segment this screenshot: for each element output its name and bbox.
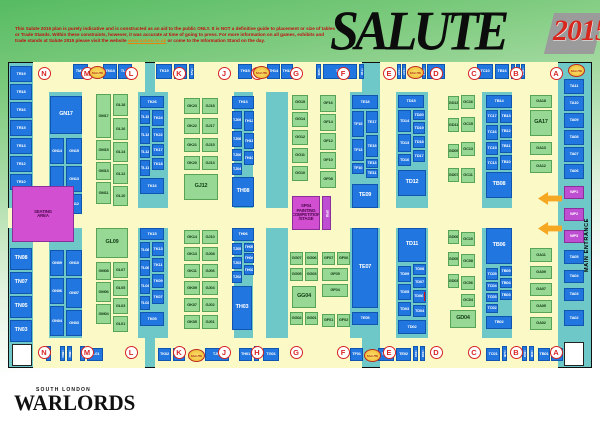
booth-th06: TH06: [232, 228, 254, 241]
booth-gj01: GJ01: [202, 315, 218, 329]
booth-th03: TH03: [232, 286, 252, 330]
column-marker-a-bottom: A: [550, 346, 563, 359]
booth-gj10: GJ10: [202, 230, 218, 244]
booth-te13: TE13: [366, 159, 378, 168]
booth-td07: TD07: [413, 277, 426, 288]
booth-ta05: TA05: [564, 250, 584, 264]
booth-tb06: TB06: [486, 228, 512, 264]
booth-gd07: GD07: [448, 168, 459, 182]
booth-ga09: GA09: [530, 266, 552, 279]
column-marker-g-bottom: G: [290, 346, 303, 359]
booth-gg15: GG15: [292, 95, 308, 110]
booth-gd09: GD09: [448, 144, 459, 158]
booth-gf10: GF10: [320, 152, 336, 169]
booth-gd04: GD04: [450, 310, 476, 328]
salute-badge-icon: SALUTE: [364, 349, 381, 362]
booth-td19: TD19: [413, 122, 425, 134]
booth-gm11: GM11: [96, 182, 111, 204]
booth-tb15: TB15: [522, 346, 527, 361]
booth-th01: TH01: [239, 348, 252, 361]
aisle: [8, 208, 558, 228]
booth-gm13: GM13: [96, 162, 111, 180]
booth-gg14: GG14: [292, 112, 308, 127]
main-entrance-label: MAIN ENTRANCE: [584, 176, 590, 272]
booth-gf06: GF06: [337, 252, 350, 265]
column-marker-a-top: A: [550, 67, 563, 80]
booth-gn06: GN06: [50, 278, 64, 304]
booth-wp3: WP3: [564, 230, 584, 243]
column-marker-c-top: C: [468, 67, 481, 80]
column-marker-h-bottom: H: [251, 346, 264, 359]
booth-gj13: GJ13: [202, 156, 218, 170]
salute-badge-icon: SALUTE: [407, 66, 424, 79]
booth-gf12: GF12: [320, 133, 336, 150]
booth-gj02: GJ02: [202, 298, 218, 312]
booth-tr18: TR18: [10, 84, 32, 100]
booth-tn08: TN08: [10, 248, 32, 270]
booth-gk20: GK20: [184, 156, 200, 170]
booth-ga13: GA13: [530, 142, 552, 155]
booth-gg12: GG12: [292, 130, 308, 145]
booth-tl02: TL02: [140, 296, 150, 310]
booth-ga11: GA11: [530, 248, 552, 262]
booth-gn03: GN03: [66, 310, 82, 336]
booth-tr12: TR12: [10, 156, 32, 172]
disclaimer-text: This Salute 2015 plan is purely indicati…: [15, 26, 335, 45]
salute-website-link: www.salute.co.uk: [128, 38, 166, 43]
booth-gl03: GL03: [113, 298, 128, 314]
booth-tj03: TJ03: [232, 257, 242, 269]
booth-gf08: GF08: [320, 171, 336, 188]
booth-tb03: TB03: [500, 290, 512, 300]
booth-gg01: GG01: [305, 312, 318, 325]
booth-te11: TE11: [366, 169, 378, 178]
booth-gd06: GD06: [448, 230, 459, 244]
column-marker-j-top: J: [218, 67, 231, 80]
booth-tb10: TB10: [500, 155, 512, 170]
booth-gc10: GC10: [461, 232, 475, 246]
column-marker-c-bottom: C: [468, 346, 481, 359]
booth-te04: TE04: [420, 346, 425, 361]
booth-tk22: TK22: [152, 128, 164, 142]
booth-td09: TD09: [398, 266, 411, 282]
booth-gk13: GK13: [184, 247, 200, 261]
booth-tl11: TL11: [140, 160, 150, 176]
booth-tj02: TJ02: [232, 271, 242, 283]
booth-ta04: TA04: [564, 270, 584, 283]
booth-td02: TD02: [398, 320, 426, 334]
booth-gk11: GK11: [184, 264, 200, 278]
booth-tk17: TK17: [152, 144, 164, 156]
booth-gj06: GJ06: [202, 264, 218, 278]
booth-gg03: GG03: [305, 268, 318, 281]
door: [564, 342, 584, 366]
booth-tb09: TB09: [529, 346, 534, 361]
booth-th15: TH15: [238, 64, 252, 79]
booth-tj08: TJ08: [232, 131, 242, 147]
column-marker-n-top: N: [38, 67, 51, 80]
booth-th11: TH11: [244, 133, 254, 149]
booth-gj04: GJ04: [202, 281, 218, 295]
booth-gm06: GM06: [96, 282, 111, 302]
booth-tr16: TR16: [10, 102, 32, 118]
booth-tc04: TC04: [486, 282, 498, 291]
booth-tb04: TB04: [500, 278, 512, 288]
booth-gf16: GF16: [320, 95, 336, 112]
booth-ta09: TA09: [564, 113, 584, 128]
booth-tn07: TN07: [10, 272, 32, 294]
booth-tl15: TL15: [140, 110, 150, 124]
booth-tc01: TC01: [486, 348, 500, 361]
booth-gg02: GG02: [290, 312, 303, 325]
booth-tc15: TC15: [486, 142, 498, 155]
booth-tm03: TM03: [60, 346, 65, 361]
column-marker-k-top: K: [173, 67, 186, 80]
booth-tl12: TL12: [140, 146, 150, 158]
booth-te18: TE18: [352, 95, 378, 109]
salute-year: 2015: [553, 14, 600, 48]
booth-gn15: GN15: [66, 138, 82, 164]
column-marker-e-top: E: [383, 67, 396, 80]
booth-gd05: GD05: [448, 252, 459, 266]
booth-tf18: TF18: [359, 64, 364, 79]
booth-gf14: GF14: [320, 114, 336, 131]
booth-ta06: TA06: [564, 164, 584, 179]
booth-seating: SEATING AREA: [12, 186, 74, 242]
booth-gc13: GC13: [461, 142, 475, 156]
booth-ta11: TA11: [564, 79, 584, 94]
column-marker-d-bottom: D: [430, 346, 443, 359]
booth-tk11: TK11: [152, 258, 164, 272]
booth-gf02: GF02: [337, 314, 350, 327]
booth-tk26: TK26: [140, 96, 164, 108]
booth-gk07: GK07: [184, 298, 200, 312]
booth-tb01: TB01: [538, 348, 550, 361]
booth-gg04: GG04: [292, 286, 316, 308]
salute-badge-icon: SALUTE: [568, 64, 585, 77]
booth-tc05: TC05: [486, 268, 498, 280]
booth-gc16: GC16: [461, 95, 475, 109]
booth-tk09: TK09: [152, 274, 164, 288]
booth-ga12: GA12: [530, 160, 552, 173]
booth-gl01: GL01: [113, 316, 128, 332]
booth-tb11: TB11: [500, 140, 512, 153]
booth-gg05: GG05: [290, 268, 303, 281]
booth-gk05: GK05: [184, 315, 200, 329]
booth-te19: TE19: [397, 64, 401, 79]
booth-td05: TD05: [398, 284, 411, 300]
salute-logo: SALUTE: [330, 0, 555, 64]
booth-tj09: TJ09: [232, 111, 242, 129]
booth-th02: TH02: [244, 265, 254, 275]
booth-th12: TH12: [244, 111, 254, 131]
booth-td03: TD03: [398, 302, 411, 316]
booth-ga02: GA02: [530, 317, 552, 330]
column-marker-f-top: F: [337, 67, 350, 80]
booth-tm02: TM02: [67, 346, 72, 361]
booth-tb16: TB16: [495, 64, 509, 79]
booth-th10: TH10: [244, 151, 254, 165]
booth-ta07: TA07: [564, 147, 584, 162]
booth-gc06: GC06: [461, 276, 475, 290]
booth-tk21: TK21: [189, 64, 194, 79]
booth-gf07: GF07: [322, 252, 335, 265]
booth-gm15: GM15: [96, 140, 111, 160]
first-aid-marker: [424, 292, 425, 301]
column-marker-f-bottom: F: [337, 346, 350, 359]
booth-gn07: GN07: [66, 278, 82, 308]
booth-gn04: GN04: [50, 306, 64, 336]
booth-gd13: GD13: [448, 96, 459, 110]
column-marker-e-bottom: E: [383, 346, 396, 359]
booth-td15: TD15: [398, 95, 424, 108]
booth-tc02: TC02: [486, 304, 498, 313]
salute-badge-icon: SALUTE: [89, 66, 106, 79]
booth-tc03: TC03: [486, 293, 498, 302]
salute-badge-icon: SALUTE: [188, 349, 205, 362]
booth-td08: TD08: [413, 264, 426, 275]
column-marker-b-bottom: B: [510, 346, 523, 359]
booth-gf05: GF05: [322, 268, 348, 281]
booth-gk23: GK23: [184, 98, 200, 114]
booth-gl09: GL09: [96, 228, 128, 258]
booth-gk22: GK22: [184, 118, 200, 134]
booth-tf10: TF10: [352, 163, 364, 174]
booth-tc17: TC17: [486, 110, 498, 123]
booth-gn10: GN10: [66, 250, 82, 276]
booth-gn17: GN17: [50, 96, 82, 134]
booth-gl16: GL16: [113, 118, 128, 140]
booth-gg06: GG06: [305, 252, 318, 265]
booth-te05: TE05: [352, 312, 378, 325]
booth-td17: TD17: [413, 150, 425, 162]
booth-gg11: GG11: [292, 148, 308, 163]
booth-gl07: GL07: [113, 262, 128, 278]
booth-gj18: GJ18: [202, 98, 218, 114]
booth-tk18: TK18: [152, 158, 164, 170]
booth-td04: TD04: [413, 305, 426, 317]
booth-gn14: GN14: [50, 138, 64, 164]
booth-ga18: GA18: [530, 95, 552, 108]
booth-tf01: TF01: [350, 348, 363, 361]
booth-gd11: GD11: [448, 118, 459, 132]
booth-tk16: TK16: [140, 178, 164, 194]
booth-td12: TD12: [398, 170, 426, 196]
booth-wp2: WP2: [564, 208, 584, 221]
booth-gl05: GL05: [113, 280, 128, 296]
booth-tc16: TC16: [486, 125, 498, 140]
booth-te02: TE02: [396, 348, 411, 361]
booth-gm08: GM08: [96, 262, 111, 280]
booth-gk14: GK14: [184, 230, 200, 244]
booth-ga17: GA17: [530, 110, 552, 136]
booth-tl04: TL04: [140, 278, 150, 294]
booth-th08: TH08: [232, 177, 254, 207]
booth-tr15: TR15: [10, 120, 32, 136]
booth-ga07: GA07: [530, 283, 552, 296]
booth-gj12: GJ12: [184, 174, 218, 200]
booth-ta10: TA10: [564, 96, 584, 111]
booth-tl08: TL08: [140, 242, 150, 258]
booth-gl10: GL10: [113, 186, 128, 206]
booth-gl18: GL18: [113, 94, 128, 116]
column-marker-k-bottom: K: [173, 346, 186, 359]
booth-gn09: GN09: [50, 250, 64, 276]
booth-td20: TD20: [413, 110, 425, 120]
column-marker-l-top: L: [125, 67, 138, 80]
booth-td11: TD11: [398, 228, 426, 262]
booth-gc11: GC11: [461, 168, 475, 183]
booth-tb12: TB12: [500, 125, 512, 138]
booth-gj17: GJ17: [202, 118, 218, 134]
booth-wp1: WP1: [564, 186, 584, 199]
booth-gk21: GK21: [184, 138, 200, 152]
booth-tk02: TK02: [158, 348, 171, 361]
booth-te15: TE15: [366, 135, 378, 157]
booth-ta02: TA02: [564, 310, 584, 326]
booth-gl12: GL12: [113, 164, 128, 184]
booth-ta08: TA08: [564, 130, 584, 145]
salute-badge-icon: SALUTE: [253, 66, 270, 79]
booth-ga05: GA05: [530, 300, 552, 313]
booth-tc13: TC13: [486, 157, 498, 170]
booth-td14: TD14: [398, 110, 411, 132]
booth-th13: TH13: [232, 96, 254, 109]
booth-gg10: GG10: [292, 166, 308, 181]
booth-gj08: GJ08: [202, 247, 218, 261]
booth-tb13: TB13: [500, 110, 512, 123]
booth-te20: TE20: [402, 64, 406, 79]
booth-tn03: TN03: [10, 320, 32, 342]
booth-gm04: GM04: [96, 304, 111, 324]
booth-tj06: TJ06: [232, 149, 242, 161]
booth-gd03: GD03: [448, 274, 459, 288]
booth-sp04: SP04 PAINTING COMPETITION /STAGE: [292, 196, 320, 230]
booth-tf13: TF13: [352, 139, 364, 161]
booth-gj15: GJ15: [202, 138, 218, 152]
booth-td16: TD16: [398, 154, 411, 166]
booth-td18: TD18: [413, 136, 425, 148]
booth-gg07: GG07: [290, 252, 303, 265]
column-marker-j-bottom: J: [218, 346, 231, 359]
booth-tj04: TJ04: [232, 163, 242, 175]
column-marker-d-top: D: [430, 67, 443, 80]
booth-td06: TD06: [413, 290, 426, 303]
booth-tk05: TK05: [140, 312, 164, 326]
booth-te09: TE09: [352, 184, 378, 208]
booth-gc04: GC04: [461, 294, 475, 307]
booth-te07: TE07: [352, 228, 378, 308]
booth-td13: TD13: [398, 134, 411, 152]
booth-tf15: TF15: [352, 111, 364, 137]
booth-th04: TH04: [244, 253, 254, 263]
booth-tk13: TK13: [152, 242, 164, 256]
door: [12, 344, 32, 366]
booth-tj05: TJ05: [232, 243, 242, 255]
column-marker-m-bottom: M: [81, 346, 94, 359]
booth-gf04: GF04: [322, 284, 348, 297]
booth-tk19: TK19: [156, 64, 172, 79]
booth-tb14: TB14: [486, 95, 512, 108]
booth-tk15: TK15: [140, 228, 164, 240]
booth-tr19: TR19: [10, 66, 32, 82]
booth-tc06: TC06: [502, 346, 507, 361]
booth-ta03: TA03: [564, 288, 584, 301]
booth-tl06: TL06: [140, 260, 150, 276]
booth-gc15: GC15: [461, 117, 475, 132]
booth-tg04: TG04: [316, 64, 321, 79]
booth-tb05: TB05: [500, 266, 512, 276]
booth-gl14: GL14: [113, 142, 128, 162]
booth-tr13: TR13: [10, 138, 32, 154]
column-marker-n-bottom: N: [38, 346, 51, 359]
booth-tn05: TN05: [10, 296, 32, 318]
booth-tg01: TG01: [263, 348, 279, 361]
booth-tk24: TK24: [152, 110, 164, 126]
column-marker-l-bottom: L: [125, 346, 138, 359]
booth-gm17: GM17: [96, 94, 111, 138]
booth-th05: TH05: [244, 243, 254, 252]
booth-tk07: TK07: [152, 290, 164, 304]
booth-sp03: SP03: [322, 196, 331, 230]
booth-gc08: GC08: [461, 254, 475, 268]
column-marker-g-top: G: [290, 67, 303, 80]
booth-te17: TE17: [366, 111, 378, 133]
booth-tl13: TL13: [140, 126, 150, 144]
warlords-logo: SOUTH LONDON WARLORDS: [14, 387, 135, 413]
warlords-logo-main: WARLORDS: [14, 393, 135, 414]
column-marker-b-top: B: [510, 67, 523, 80]
booth-gk09: GK09: [184, 281, 200, 295]
booth-gf01: GF01: [322, 314, 335, 327]
booth-tb02: TB02: [486, 316, 512, 329]
booth-te03: TE03: [413, 346, 418, 361]
booth-tb08: TB08: [486, 172, 512, 198]
